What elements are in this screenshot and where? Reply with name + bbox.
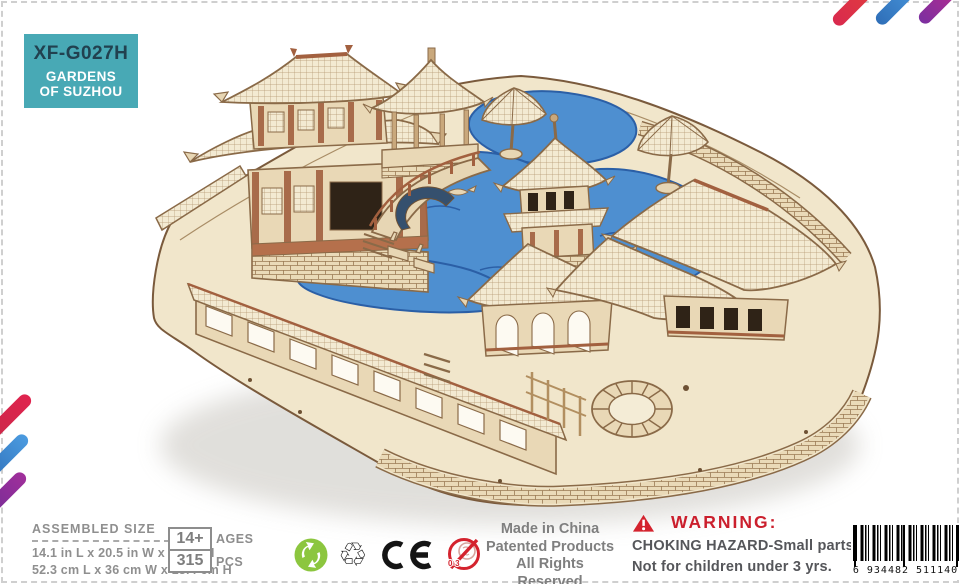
choking-hazard-icon: 0-3 (444, 536, 484, 574)
made-in-text: Made in China (483, 521, 617, 539)
age-value: 14+ (176, 530, 203, 548)
choking-age-range-text: 0-3 (448, 559, 460, 568)
product-render-gardens-of-suzhou-model (0, 0, 960, 584)
barcode-guard-right (956, 525, 958, 567)
age-box: 14+ (168, 527, 212, 551)
warning-title: WARNING: (671, 512, 777, 533)
green-dot-recycling-icon (293, 537, 329, 573)
rights-text: All Rights Reserved (483, 556, 617, 584)
origin-block: Made in China Patented Products All Righ… (483, 521, 617, 584)
age-label: AGES (216, 532, 253, 546)
warning-triangle-icon (632, 513, 655, 533)
recycling-mobius-icon: ♲ (338, 536, 368, 574)
model-badge: XF-G027H GARDENS OF SUZHOU (24, 34, 138, 108)
warning-age-text: Not for children under 3 yrs. (632, 559, 858, 575)
age-pieces-block: 14+ AGES 315 PCS (168, 527, 253, 573)
barcode-guard-center (903, 525, 905, 567)
series-line-1: GARDENS (39, 69, 122, 84)
ce-mark-icon (377, 537, 435, 573)
pieces-box: 315 (168, 549, 212, 573)
compliance-icons: ♲ 0-3 (293, 536, 484, 574)
barcode-bars (853, 525, 959, 561)
patented-text: Patented Products (483, 539, 617, 557)
model-code: XF-G027H (34, 43, 129, 65)
barcode-guard-left (854, 525, 856, 567)
package-front-panel: XF-G027H GARDENS OF SUZHOU ASSEMBLED SIZ… (0, 0, 960, 584)
warning-hazard-text: CHOKING HAZARD-Small parts. (632, 538, 858, 554)
series-name: GARDENS OF SUZHOU (39, 69, 122, 99)
assembled-size-heading: ASSEMBLED SIZE (32, 522, 170, 542)
barcode: 6 934482 511140 (851, 523, 960, 580)
series-line-2: OF SUZHOU (39, 84, 122, 99)
barcode-number: 6 934482 511140 (851, 565, 960, 576)
render-circular-courtyard (592, 381, 672, 437)
warning-block: WARNING: CHOKING HAZARD-Small parts. Not… (632, 512, 858, 575)
pieces-value: 315 (177, 552, 204, 570)
pieces-label: PCS (216, 555, 243, 569)
